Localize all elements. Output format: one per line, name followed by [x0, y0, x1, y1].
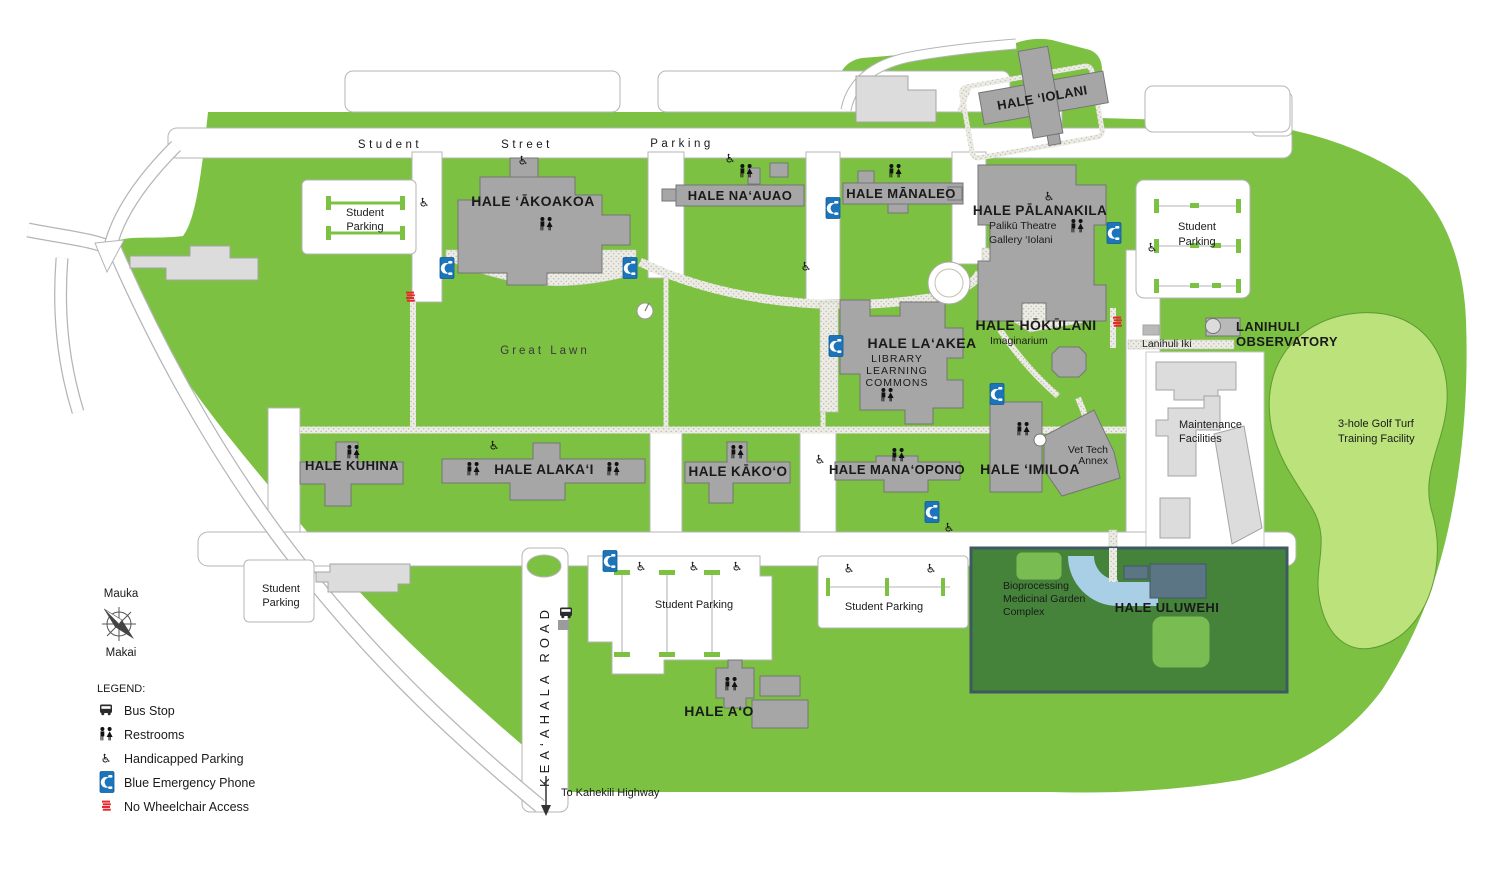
emergency-phone-icon [1107, 223, 1121, 244]
handicapped-parking-icon [732, 560, 743, 574]
label-laakea: HALE LA‘AKEA [867, 335, 976, 351]
label-imaginarium: Imaginarium [990, 335, 1048, 347]
legend-no-wheelchair-icon [102, 801, 111, 811]
label-commons: COMMONS [866, 377, 929, 389]
lot-bottom-center-label: Student Parking [655, 599, 733, 611]
bldg-ao-annex2 [752, 700, 808, 728]
road-vertical-manaleo [806, 152, 840, 300]
lanihuli-observatory-icon [1206, 318, 1241, 336]
label-vettech-2: Annex [1078, 455, 1109, 467]
legend-bus-stop-label: Bus Stop [124, 704, 175, 718]
lot-bottom-left-label-2: Parking [262, 597, 299, 609]
label-lanihuli-iki: Lanihuli Iki [1142, 338, 1192, 350]
label-gallery-iolani: Gallery ‘Iolani [989, 234, 1053, 246]
handicapped-parking-icon [815, 453, 826, 467]
label-alakai: HALE ALAKA‘I [494, 462, 594, 477]
emergency-phone-icon [826, 198, 840, 219]
bldg-ao-annex1 [760, 676, 800, 696]
label-garden-1: Bioprocessing [1003, 580, 1069, 592]
legend-bus-stop-icon [100, 705, 112, 716]
label-hokulani: HALE HŌKŪLANI [975, 316, 1096, 333]
handicapped-parking-icon [844, 562, 855, 576]
label-ao: HALE A‘O [684, 703, 754, 719]
street-labels: Student Street Parking [358, 138, 714, 151]
compass-makai-label: Makai [106, 647, 137, 659]
bldg-unnamed-southwest [316, 564, 410, 592]
legend-phone-label: Blue Emergency Phone [124, 776, 255, 790]
bldg-manaleo-c [888, 204, 908, 213]
compass-rose-icon [102, 607, 136, 641]
legend: LEGEND: Bus Stop Restrooms Handicapped P… [97, 683, 255, 814]
garden-dotted-path [1109, 548, 1117, 582]
handicapped-parking-icon [419, 196, 430, 210]
emergency-phone-icon [623, 258, 637, 279]
label-maintenance-2: Facilities [1179, 433, 1222, 445]
road-vertical-kakoo-manaopono [800, 428, 836, 540]
bldg-lanihuli-iki [1143, 325, 1159, 335]
legend-restrooms-label: Restrooms [124, 728, 184, 742]
label-manaleo: HALE MĀNALEO [846, 186, 956, 201]
label-kakoo: HALE KĀKO‘O [689, 464, 788, 479]
label-garden-2: Medicinal Garden [1003, 593, 1085, 605]
street-label-street: Street [501, 139, 553, 151]
label-golf-2: Training Facility [1338, 433, 1415, 445]
label-library: LIBRARY [871, 353, 923, 365]
legend-handicapped-label: Handicapped Parking [124, 752, 244, 766]
lot-palanakila-label-2: Parking [1178, 236, 1215, 248]
bldg-naauao-c [662, 189, 676, 201]
lot-palanakila-label-1: Student [1178, 221, 1216, 233]
legend-title: LEGEND: [97, 683, 145, 695]
handicapped-parking-icon [926, 562, 937, 576]
label-lanihuli-1: LANIHULI [1236, 319, 1300, 334]
label-paliku-theatre: Palikū Theatre [989, 220, 1057, 232]
handicapped-parking-icon [636, 560, 647, 574]
lot-top-left-label-1: Student [346, 207, 384, 219]
bldg-imiloa [990, 402, 1042, 492]
road-upper-street-b [658, 71, 1010, 112]
compass: Mauka Makai [102, 588, 139, 659]
bldg-naauao-b [770, 163, 788, 177]
emergency-phone-icon [925, 502, 939, 523]
campus-map-canvas: ♿ [0, 0, 1504, 879]
to-highway-label: To Kahekili Highway [561, 787, 660, 799]
label-manaopono: HALE MANA‘OPONO [829, 462, 965, 477]
handicapped-parking-icon [1147, 241, 1158, 255]
lot-bottom-right-label: Student Parking [845, 601, 923, 613]
plaza-laakea-west [820, 302, 838, 412]
bldg-maintenance-4 [1160, 498, 1190, 538]
handicapped-parking-icon [518, 154, 529, 168]
legend-handicapped-icon [101, 752, 112, 766]
bldg-manaleo-a [858, 171, 874, 183]
bldg-imiloa-courtyard [1034, 434, 1046, 446]
emergency-phone-icon [829, 336, 843, 357]
bldg-hokulani-imaginarium [1052, 347, 1086, 377]
label-maintenance-1: Maintenance [1179, 419, 1242, 431]
road-vertical-alakai-kakoo [650, 428, 682, 540]
great-lawn-label: Great Lawn [500, 345, 589, 357]
emergency-phone-icon [603, 551, 617, 572]
label-palanakila: HALE PĀLANAKILA [973, 203, 1107, 218]
street-label-parking: Parking [650, 138, 714, 150]
label-lanihuli-2: OBSERVATORY [1236, 334, 1338, 349]
label-imiloa: HALE ‘IMILOA [980, 461, 1080, 477]
lot-bottom-left-label-1: Student [262, 583, 300, 595]
handicapped-parking-icon [689, 560, 700, 574]
campus-map: ♿ [0, 0, 1504, 879]
handicapped-parking-icon [489, 439, 500, 453]
legend-no-wheelchair-label: No Wheelchair Access [124, 800, 249, 814]
emergency-phone-icon [440, 258, 454, 279]
label-akoakoa: HALE ‘ĀKOAKOA [471, 193, 594, 209]
lot-bottom-right [818, 556, 968, 628]
street-label-student: Student [358, 139, 422, 151]
label-golf-1: 3-hole Golf Turf [1338, 418, 1415, 430]
compass-mauka-label: Mauka [104, 588, 139, 600]
emergency-phone-icon [990, 384, 1004, 405]
label-kuhina: HALE KUHINA [305, 458, 399, 473]
handicapped-parking-icon [801, 260, 812, 274]
handicapped-parking-icon [1044, 190, 1055, 204]
road-vertical-naauao [648, 152, 684, 278]
legend-phone-icon [100, 772, 114, 793]
circle-plaza [928, 262, 970, 304]
roundabout-median [527, 555, 561, 577]
keaahala-road-label: KEA‘AHALA ROAD [537, 605, 552, 787]
label-uluwehi: HALE ULUWEHI [1115, 600, 1219, 615]
label-learning: LEARNING [866, 365, 928, 377]
label-naauao: HALE NA‘AUAO [688, 188, 792, 203]
lot-top-left-label-2: Parking [346, 221, 383, 233]
label-garden-3: Complex [1003, 606, 1045, 618]
handicapped-parking-icon [725, 152, 736, 166]
road-upper-street-a [345, 71, 620, 112]
road-upper-street-c [1145, 86, 1290, 132]
legend-restrooms-icon [100, 727, 112, 740]
handicapped-parking-icon [944, 521, 955, 535]
